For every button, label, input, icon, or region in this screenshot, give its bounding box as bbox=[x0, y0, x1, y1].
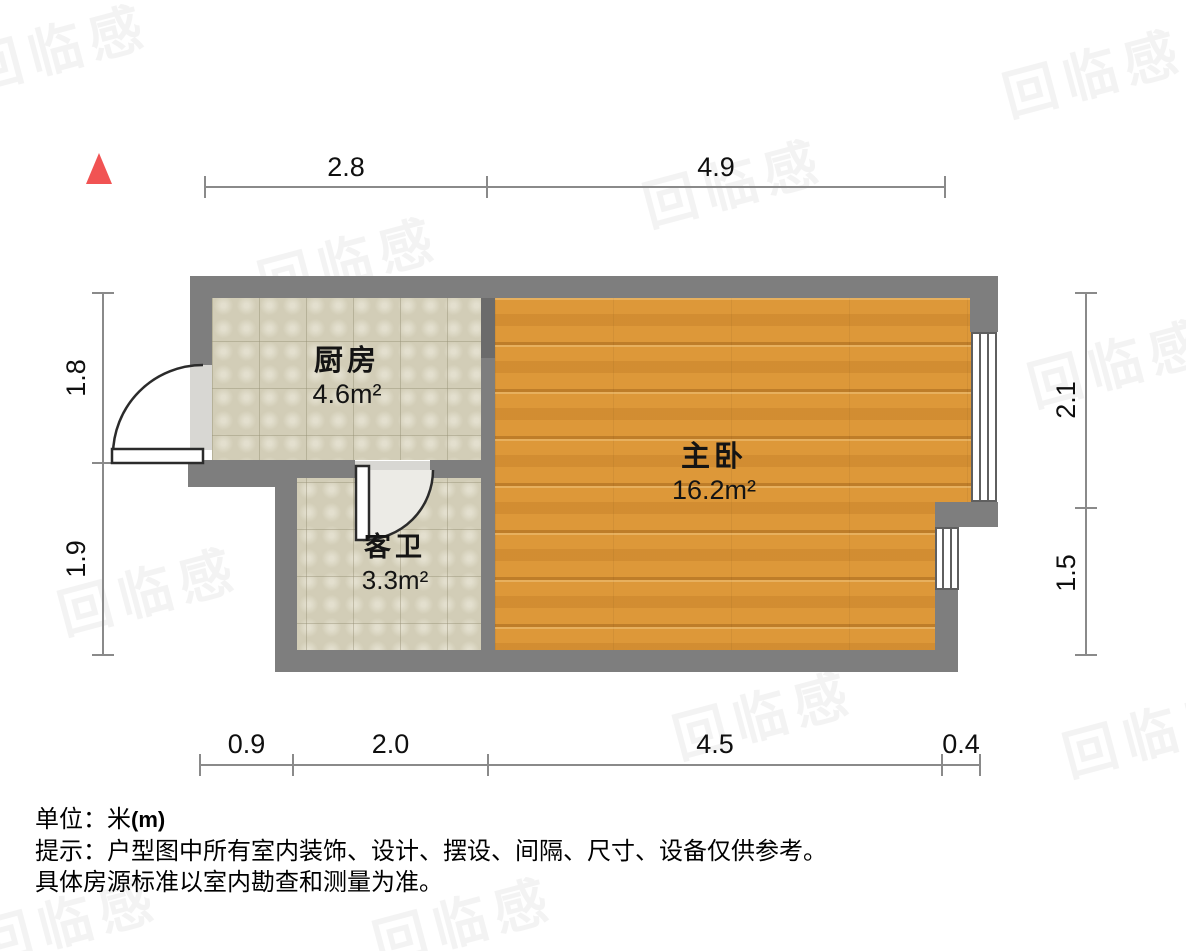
dim-tick bbox=[1075, 507, 1097, 509]
window-pane-line bbox=[950, 529, 952, 588]
wall-top bbox=[190, 276, 998, 298]
dim-value-left-2: 1.9 bbox=[63, 524, 89, 594]
north-arrow-icon bbox=[86, 153, 112, 184]
wall-kitchen-bottom-left bbox=[188, 460, 297, 487]
bedroom-window-upper bbox=[971, 332, 997, 502]
dim-tick bbox=[92, 292, 114, 294]
wall-right-lower bbox=[935, 590, 958, 672]
wall-left-upper bbox=[190, 276, 212, 365]
disclaimer-line-1: 提示：户型图中所有室内装饰、设计、摆设、间隔、尺寸、设备仅供参考。 bbox=[35, 837, 827, 869]
dim-tick bbox=[1075, 654, 1097, 656]
watermark: 回临感 bbox=[1053, 667, 1186, 791]
wall-bathroom-left bbox=[275, 487, 297, 672]
dim-line-bottom bbox=[200, 764, 980, 766]
watermark: 回临感 bbox=[993, 7, 1186, 131]
footer-notes: 单位：米(m) 提示：户型图中所有室内装饰、设计、摆设、间隔、尺寸、设备仅供参考… bbox=[35, 804, 827, 900]
unit-suffix: (m) bbox=[131, 807, 165, 832]
wall-divider-stub bbox=[481, 298, 495, 358]
entrance-door-opening bbox=[190, 364, 212, 450]
window-pane-line bbox=[979, 334, 981, 500]
bedroom-window-lower bbox=[935, 527, 959, 590]
dim-line-right bbox=[1085, 293, 1087, 655]
dim-tick bbox=[92, 462, 114, 464]
floor-plan: 回临感 回临感 回临感 回临感 回临感 回临感 回临感 回临感 回临感 回临感 … bbox=[0, 0, 1186, 951]
dim-value-bottom-2: 2.0 bbox=[293, 730, 488, 758]
watermark: 回临感 bbox=[1018, 297, 1186, 421]
dim-tick bbox=[92, 654, 114, 656]
bathroom-door-opening bbox=[355, 461, 430, 478]
dim-line-left bbox=[102, 293, 104, 655]
watermark: 回临感 bbox=[0, 0, 158, 107]
dim-tick bbox=[1075, 292, 1097, 294]
dim-value-top-2: 4.9 bbox=[487, 153, 945, 181]
dim-value-right-2: 1.5 bbox=[1053, 538, 1079, 608]
room-area: 16.2m² bbox=[614, 474, 814, 506]
wall-bathroom-top-left bbox=[297, 460, 355, 478]
room-name: 客卫 bbox=[295, 530, 495, 564]
dim-line-top bbox=[205, 186, 945, 188]
disclaimer-line-2: 具体房源标准以室内勘查和测量为准。 bbox=[35, 868, 827, 900]
unit-note: 单位：米(m) bbox=[35, 804, 827, 837]
kitchen-label: 厨房 4.6m² bbox=[247, 344, 447, 410]
dim-value-bottom-1: 0.9 bbox=[200, 730, 293, 758]
dim-value-bottom-3: 4.5 bbox=[488, 730, 942, 758]
bedroom-label: 主卧 16.2m² bbox=[614, 440, 814, 506]
window-pane-line bbox=[987, 334, 989, 500]
dim-value-top-1: 2.8 bbox=[205, 153, 487, 181]
room-name: 主卧 bbox=[614, 440, 814, 474]
unit-label: 单位：米 bbox=[35, 807, 131, 833]
bathroom-label: 客卫 3.3m² bbox=[295, 530, 495, 596]
dim-value-right-1: 2.1 bbox=[1053, 365, 1079, 435]
exterior-cutout bbox=[956, 525, 1006, 675]
room-name: 厨房 bbox=[247, 344, 447, 378]
dim-value-left-1: 1.8 bbox=[63, 343, 89, 413]
wall-bottom bbox=[275, 650, 958, 672]
window-pane-line bbox=[942, 529, 944, 588]
wall-right-step bbox=[935, 502, 998, 527]
room-area: 4.6m² bbox=[247, 378, 447, 410]
dim-value-bottom-4: 0.4 bbox=[925, 730, 997, 758]
room-area: 3.3m² bbox=[295, 564, 495, 596]
wall-right-upper bbox=[970, 276, 998, 332]
